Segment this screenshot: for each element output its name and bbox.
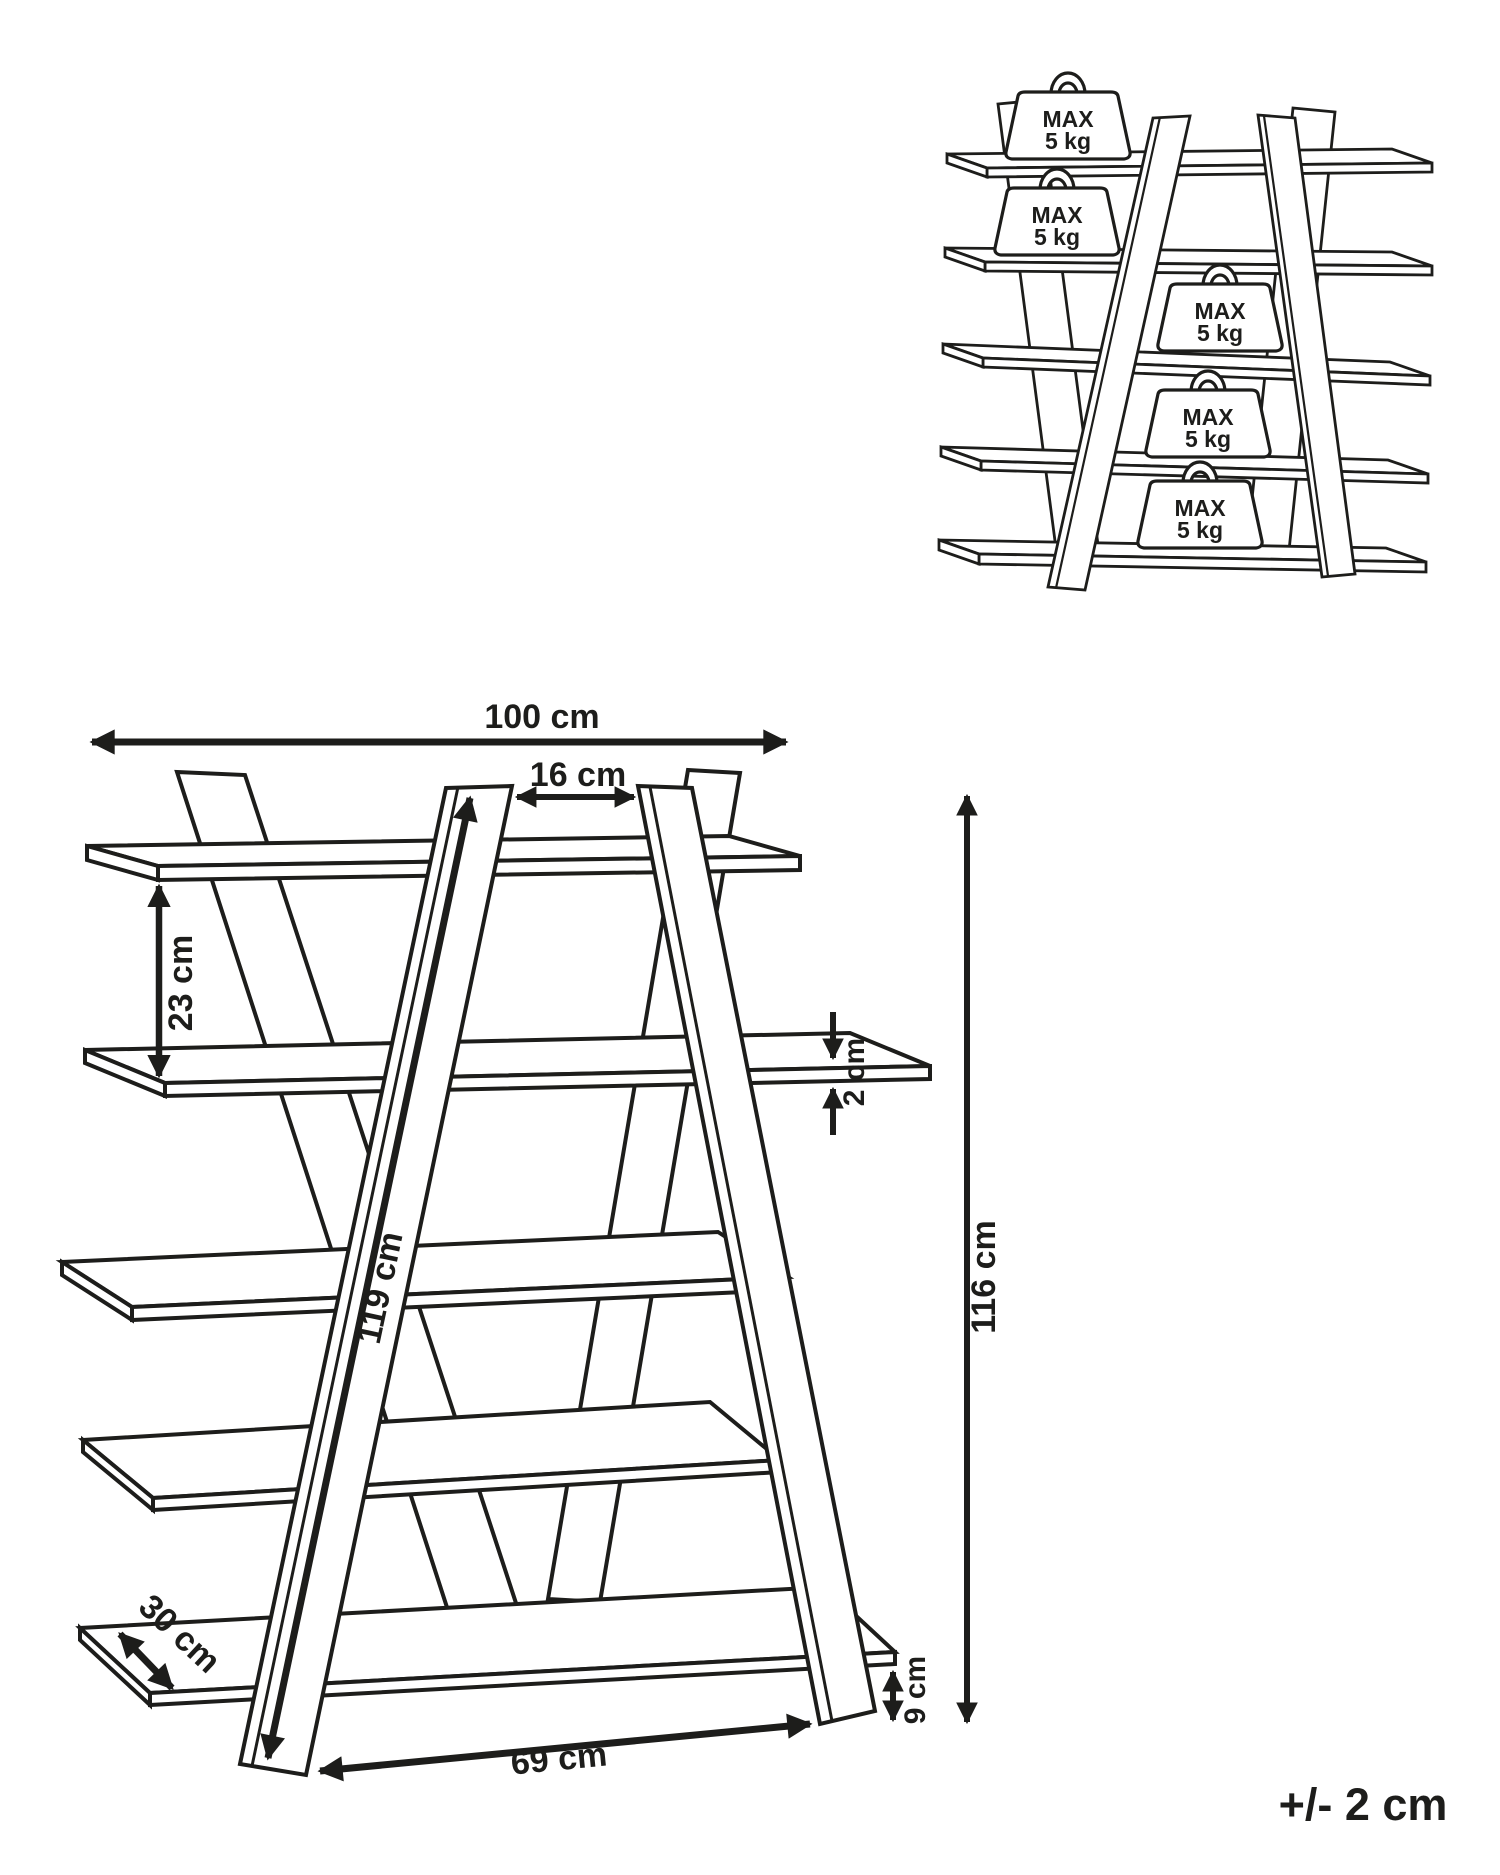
dim-floor-clearance: 9 cm: [893, 1656, 932, 1724]
assembly-dimension-page: MAX 5 kg MAX 5 kg MAX 5 kg MAX 5 kg MAX …: [0, 0, 1500, 1875]
dim-shelf-spacing-label: 23 cm: [162, 935, 200, 1031]
dim-total-width-label: 100 cm: [484, 698, 599, 736]
dim-top-opening-label: 16 cm: [530, 756, 626, 794]
dim-thickness-label: 2 cm: [838, 1038, 871, 1106]
weight-kg-label: 5 kg: [1197, 320, 1243, 346]
shelf-dimension-diagram: MAX 5 kg MAX 5 kg MAX 5 kg MAX 5 kg MAX …: [0, 0, 1500, 1875]
weight-kg-label: 5 kg: [1045, 128, 1091, 154]
dim-total-height-label: 116 cm: [965, 1220, 1003, 1333]
weight-kg-label: 5 kg: [1034, 224, 1080, 250]
dim-floor-clearance-label: 9 cm: [899, 1656, 932, 1724]
dim-top-opening: 16 cm: [517, 756, 634, 797]
weight-kg-label: 5 kg: [1185, 426, 1231, 452]
tolerance-note: +/- 2 cm: [1279, 1779, 1448, 1830]
weight-kg-label: 5 kg: [1177, 517, 1223, 543]
